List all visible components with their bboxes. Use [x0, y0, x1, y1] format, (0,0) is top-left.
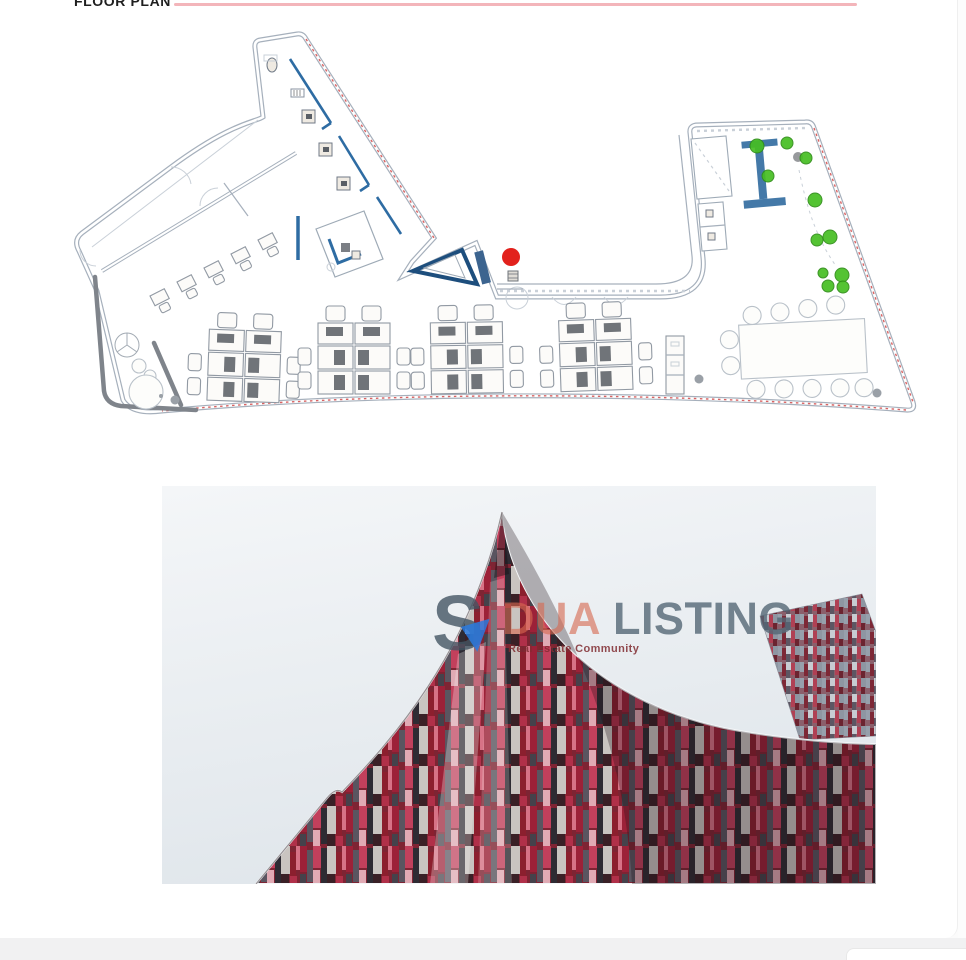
plant-icon — [823, 230, 837, 244]
toilet-icon — [267, 58, 277, 72]
plant-icon — [762, 170, 774, 182]
plant-icon — [750, 139, 764, 153]
plant-icon — [818, 268, 828, 278]
cabinet — [666, 336, 684, 394]
listing-page: FLOOR PLAN — [0, 0, 966, 960]
title-underline — [174, 3, 857, 6]
reception-marker-icon — [502, 248, 520, 266]
footer-bar — [0, 938, 966, 960]
floor-plan-title: FLOOR PLAN — [74, 0, 171, 9]
plant-icon — [835, 268, 849, 282]
building-photo-art — [162, 486, 876, 884]
round-table — [129, 375, 163, 409]
plant-icon — [800, 152, 812, 164]
plant-icon — [822, 280, 834, 292]
plant-icon — [811, 234, 823, 246]
plant-icon — [781, 137, 793, 149]
bottom-right-card — [846, 948, 966, 960]
building-photo — [162, 486, 876, 884]
plant-icon — [808, 193, 822, 207]
floor-plan-drawing — [0, 14, 966, 460]
plant-icon — [837, 281, 849, 293]
storage-room — [691, 136, 732, 199]
